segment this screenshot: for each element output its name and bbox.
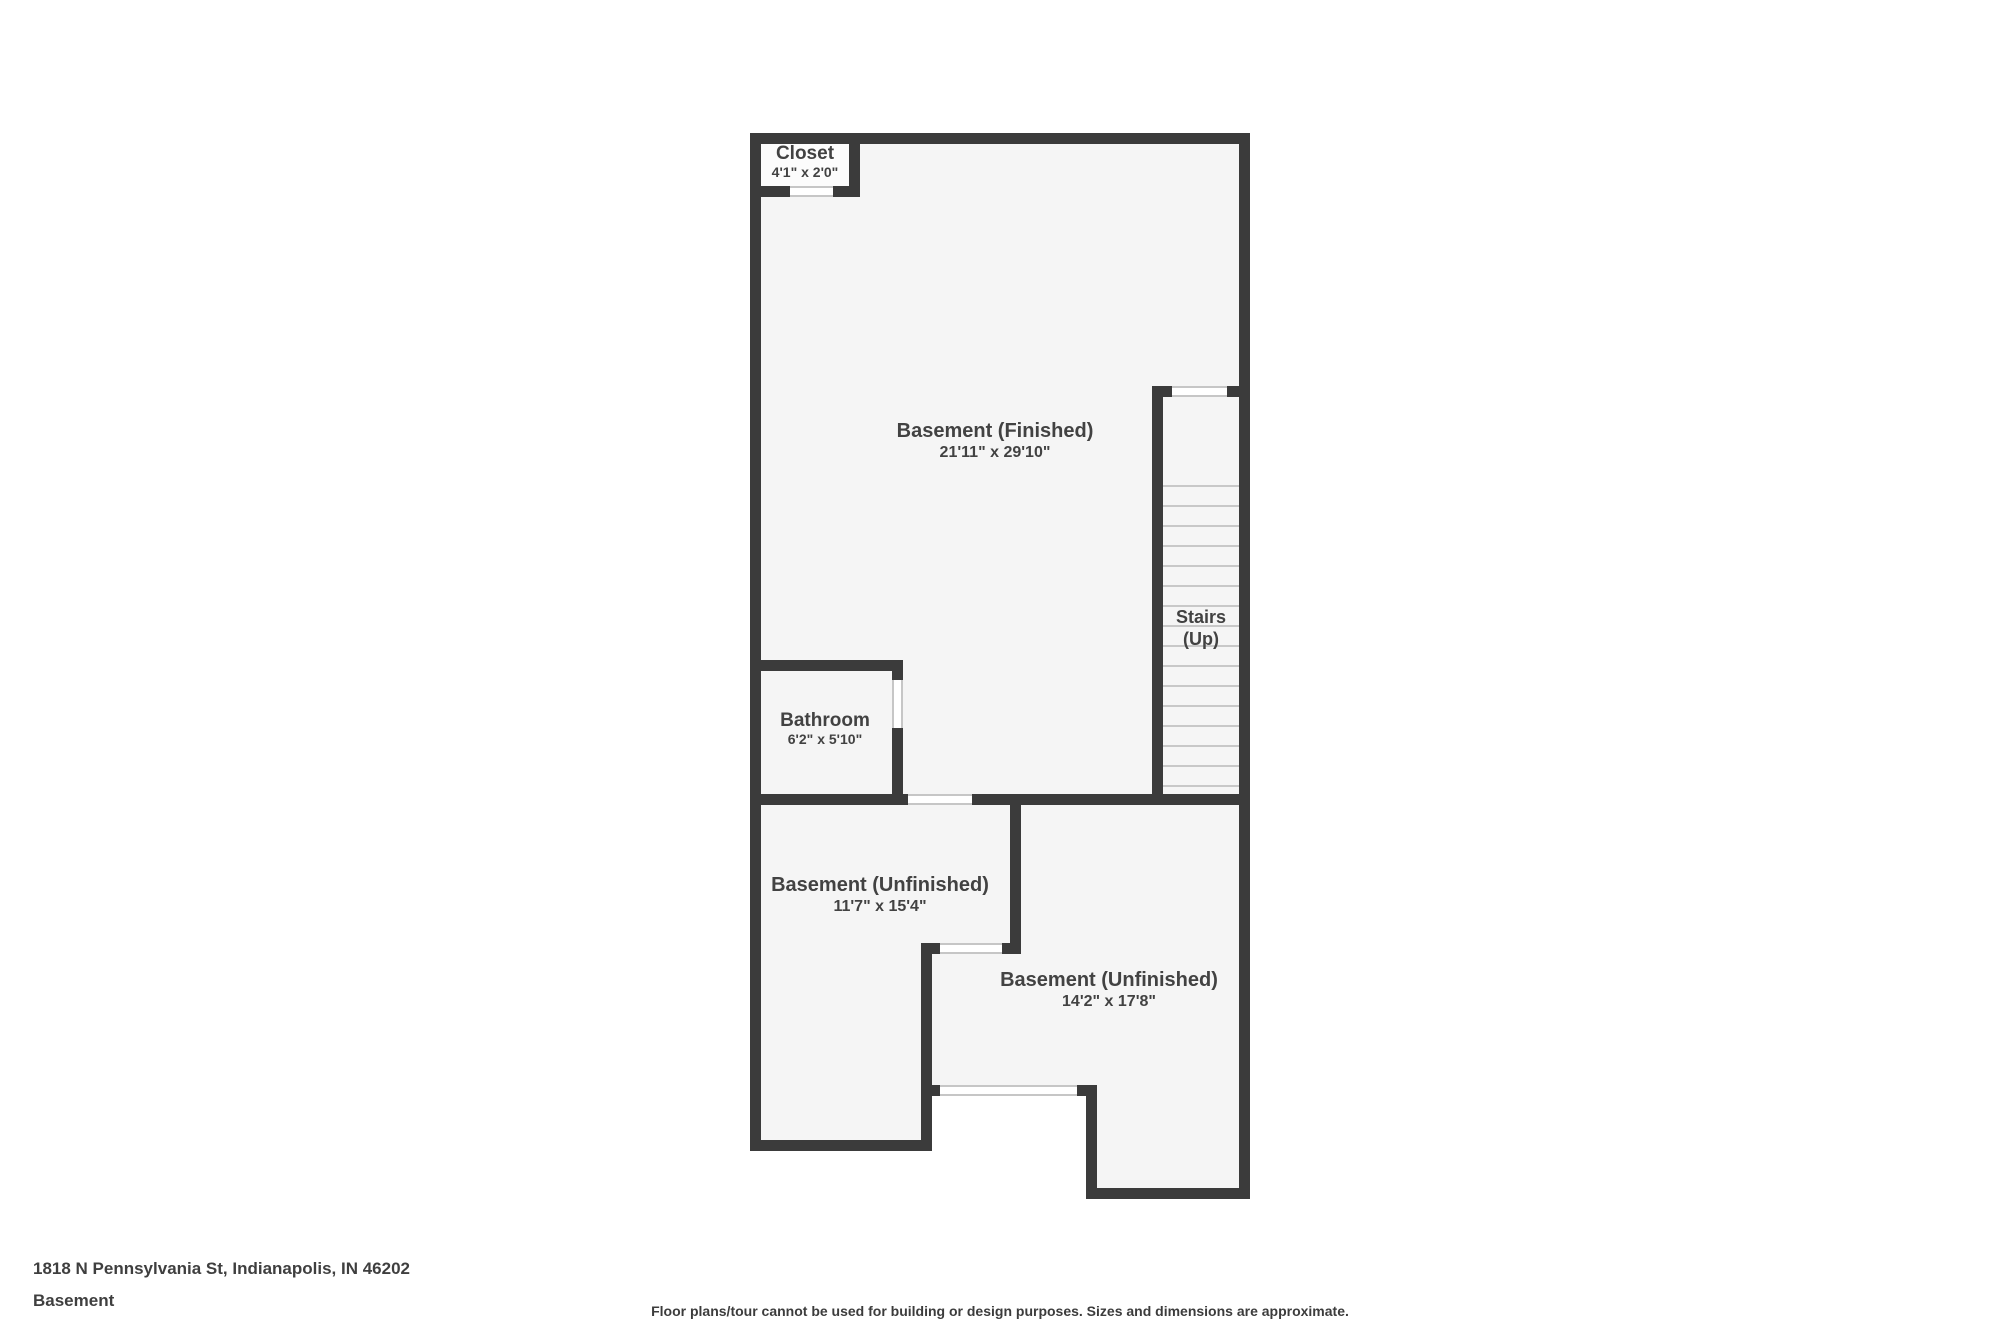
disclaimer-text: Floor plans/tour cannot be used for buil… bbox=[0, 1303, 2000, 1319]
room-dims-label: 14'2" x 17'8" bbox=[1000, 992, 1218, 1012]
wall-stairs-left bbox=[1152, 386, 1163, 805]
room-dims-label: 4'1" x 2'0" bbox=[772, 164, 839, 181]
room-label-basement-unfinished-left: Basement (Unfinished) 11'7" x 15'4" bbox=[771, 873, 989, 917]
room-name-label: Bathroom bbox=[780, 711, 870, 731]
wall-left bbox=[750, 133, 761, 1151]
room-label-stairs: Stairs (Up) bbox=[1176, 606, 1226, 650]
mid-bottom-door-opening bbox=[940, 1085, 1077, 1096]
basement-unfinished-right-floor-lower bbox=[1097, 1085, 1239, 1188]
wall-divider bbox=[750, 794, 1250, 805]
room-name-label: Basement (Unfinished) bbox=[771, 873, 989, 897]
room-dims-label: 11'7" x 15'4" bbox=[771, 897, 989, 917]
wall-between-unfinished-rooms bbox=[1010, 794, 1021, 954]
stairs-label-line1: Stairs bbox=[1176, 606, 1226, 628]
stairs-door-opening bbox=[1172, 386, 1227, 397]
jog-door-opening bbox=[940, 943, 1002, 954]
room-dims-label: 6'2" x 5'10" bbox=[780, 731, 870, 748]
room-name-label: Basement (Unfinished) bbox=[1000, 968, 1218, 992]
room-label-basement-finished: Basement (Finished) 21'11" x 29'10" bbox=[897, 419, 1094, 463]
basement-unfinished-left-floor-lower bbox=[761, 943, 921, 1140]
room-label-basement-unfinished-right: Basement (Unfinished) 14'2" x 17'8" bbox=[1000, 968, 1218, 1012]
stairs-label-line2: (Up) bbox=[1176, 628, 1226, 650]
wall-right bbox=[1239, 133, 1250, 1199]
room-name-label: Basement (Finished) bbox=[897, 419, 1094, 443]
property-address: 1818 N Pennsylvania St, Indianapolis, IN… bbox=[33, 1259, 410, 1279]
wall-left-room-right bbox=[921, 943, 932, 1151]
wall-left-room-bottom bbox=[750, 1140, 932, 1151]
basement-unfinished-right-floor-upper bbox=[1021, 805, 1239, 954]
room-label-closet: Closet 4'1" x 2'0" bbox=[772, 144, 839, 181]
divider-door-opening bbox=[908, 794, 972, 805]
room-dims-label: 21'11" x 29'10" bbox=[897, 443, 1094, 463]
bathroom-door-opening bbox=[892, 680, 903, 728]
room-label-bathroom: Bathroom 6'2" x 5'10" bbox=[780, 711, 870, 748]
wall-bottom-right bbox=[1086, 1188, 1250, 1199]
closet-door-opening bbox=[790, 186, 833, 197]
floor-plan-canvas: Closet 4'1" x 2'0" Basement (Finished) 2… bbox=[0, 0, 2000, 1333]
wall-right-room-step bbox=[1086, 1085, 1097, 1199]
wall-bathroom-top bbox=[750, 660, 903, 671]
room-name-label: Closet bbox=[772, 144, 839, 164]
